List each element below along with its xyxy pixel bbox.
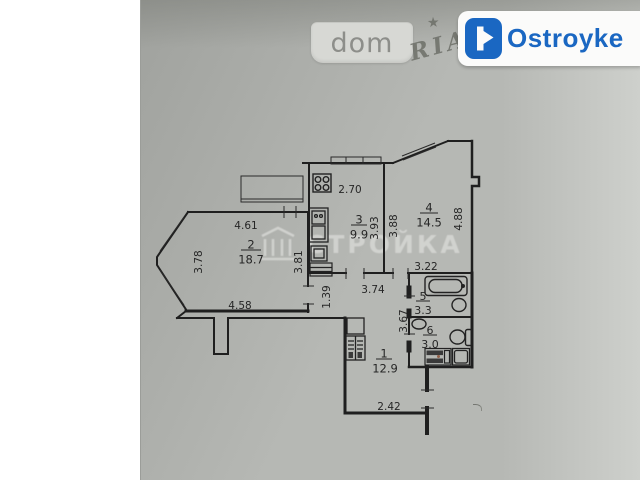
room-6-area: 3.0 [421, 338, 439, 351]
dim-4-61: 4.61 [234, 220, 257, 232]
dim-1-39: 1.39 [321, 285, 333, 308]
room-5-area: 3.3 [414, 304, 432, 317]
dim-3-93: 3.93 [369, 216, 381, 239]
dim-3-74: 3.74 [361, 284, 385, 296]
dim-4-58: 4.58 [228, 300, 251, 312]
pen-mark [473, 404, 482, 411]
kitchen-cabinet-icon [311, 246, 327, 261]
dim-3-78: 3.78 [193, 250, 205, 273]
room-3-area: 9.9 [350, 228, 368, 242]
kitchen-counter-icon [310, 263, 332, 276]
room-1-area: 12.9 [372, 362, 398, 376]
star-icon: ★ [427, 15, 440, 32]
dim-2-42: 2.42 [377, 401, 400, 413]
stove-icon [313, 174, 331, 192]
dom-watermark: dom [311, 22, 413, 63]
room-4-number: 4 [425, 201, 432, 215]
dom-watermark-label: dom [331, 30, 394, 57]
ostroyke-logo: Ostroyke [458, 11, 640, 66]
dim-3-67: 3.67 [398, 309, 410, 332]
room-2-number: 2 [247, 238, 254, 252]
room-5-number: 5 [420, 290, 427, 303]
room-1-number: 1 [380, 347, 387, 361]
left-white-margin [0, 0, 140, 480]
wardrobe-icon [346, 318, 365, 360]
bathroom-sink-icon [452, 299, 466, 312]
dim-2-70: 2.70 [338, 184, 361, 196]
room-2-area: 18.7 [238, 253, 264, 267]
washbasin-icon [412, 319, 426, 329]
floorplan-photo: СТРОЙКА [140, 0, 640, 480]
bathtub-icon [425, 277, 467, 296]
dim-3-88: 3.88 [388, 214, 400, 237]
washing-machine-icon [453, 349, 470, 366]
floor-plan: 2 18.7 3 9.9 4 14.5 5 3.3 6 3.0 1 12.9 4… [141, 0, 640, 480]
room-6-number: 6 [427, 324, 434, 337]
toilet-icon [450, 330, 472, 346]
screenshot-root: СТРОЙКА [0, 0, 640, 480]
photo-speck [437, 355, 440, 358]
ostroyke-brand-icon [465, 18, 502, 59]
dim-3-22: 3.22 [414, 261, 437, 273]
ostroyke-logo-label: Ostroyke [507, 23, 624, 54]
kitchen-sink-icon [309, 208, 328, 242]
dim-3-81: 3.81 [293, 250, 305, 273]
room-4-area: 14.5 [416, 216, 442, 230]
dim-4-88: 4.88 [453, 207, 465, 230]
room-3-number: 3 [355, 213, 362, 227]
